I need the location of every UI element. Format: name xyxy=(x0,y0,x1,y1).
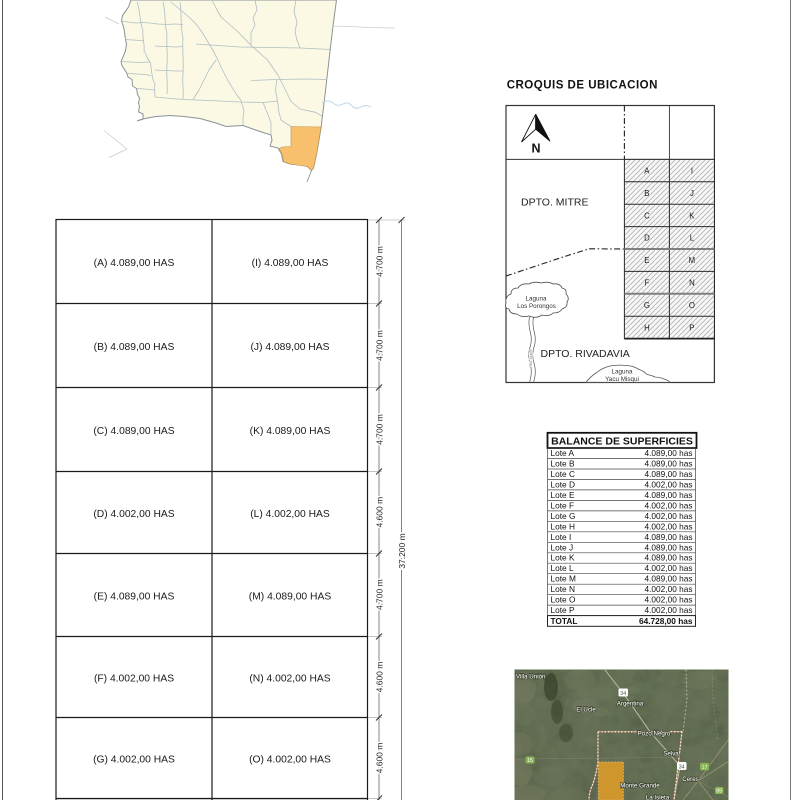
svg-text:(J) 4.089,00 HAS: (J) 4.089,00 HAS xyxy=(251,342,330,353)
svg-text:J: J xyxy=(690,189,694,198)
svg-text:Lote E: Lote E xyxy=(551,490,575,500)
svg-text:34: 34 xyxy=(620,691,626,697)
svg-text:Laguna: Laguna xyxy=(525,296,547,303)
svg-text:Lote H: Lote H xyxy=(551,521,575,531)
svg-text:(D) 4.002,00 HAS: (D) 4.002,00 HAS xyxy=(93,509,174,520)
svg-text:(B) 4.089,00 HAS: (B) 4.089,00 HAS xyxy=(94,342,175,353)
svg-text:F: F xyxy=(645,279,650,288)
svg-text:G: G xyxy=(644,301,650,310)
svg-text:4.600 m: 4.600 m xyxy=(375,662,385,693)
svg-text:4.002,00 has: 4.002,00 has xyxy=(645,563,693,573)
svg-text:DPTO. MITRE: DPTO. MITRE xyxy=(521,197,588,209)
svg-text:O: O xyxy=(689,301,695,310)
svg-text:P: P xyxy=(689,323,694,332)
svg-text:(G) 4.002,00 HAS: (G) 4.002,00 HAS xyxy=(93,755,175,766)
svg-text:(N) 4.002,00 HAS: (N) 4.002,00 HAS xyxy=(249,674,330,685)
svg-text:Villa Unión: Villa Unión xyxy=(516,674,546,681)
svg-text:Lote I: Lote I xyxy=(551,532,572,542)
svg-text:37.200 m: 37.200 m xyxy=(397,533,407,568)
svg-text:4.600 m: 4.600 m xyxy=(375,743,385,774)
svg-text:4.002,00 has: 4.002,00 has xyxy=(645,605,693,615)
svg-text:El Ucle: El Ucle xyxy=(576,707,596,714)
svg-text:4.089,00 has: 4.089,00 has xyxy=(645,532,693,542)
svg-text:4.700 m: 4.700 m xyxy=(375,330,385,361)
svg-text:La Isleta: La Isleta xyxy=(646,795,670,800)
svg-text:4.089,00 has: 4.089,00 has xyxy=(645,459,693,469)
svg-text:34: 34 xyxy=(679,764,685,770)
svg-text:L: L xyxy=(690,234,695,243)
svg-text:(A) 4.089,00 HAS: (A) 4.089,00 HAS xyxy=(94,258,175,269)
svg-text:Selva: Selva xyxy=(663,751,679,758)
svg-text:4.002,00 has: 4.002,00 has xyxy=(645,511,693,521)
svg-text:Lote B: Lote B xyxy=(551,459,575,469)
svg-text:(E) 4.089,00 HAS: (E) 4.089,00 HAS xyxy=(94,591,175,602)
svg-text:Yacu Misqui: Yacu Misqui xyxy=(605,376,639,383)
svg-text:Lote O: Lote O xyxy=(551,595,576,605)
svg-text:H: H xyxy=(644,323,650,332)
svg-text:Lote G: Lote G xyxy=(551,511,576,521)
svg-text:D: D xyxy=(644,234,650,243)
svg-text:Los Porongos: Los Porongos xyxy=(517,303,556,310)
svg-text:A: A xyxy=(644,167,650,176)
svg-text:4.089,00 has: 4.089,00 has xyxy=(645,469,693,479)
svg-text:4.700 m: 4.700 m xyxy=(375,246,385,277)
svg-text:DPTO. RIVADAVIA: DPTO. RIVADAVIA xyxy=(541,348,630,360)
svg-text:4.700 m: 4.700 m xyxy=(375,579,385,610)
svg-text:4.002,00 has: 4.002,00 has xyxy=(645,479,693,489)
svg-text:15: 15 xyxy=(527,758,533,764)
svg-text:M: M xyxy=(689,256,696,265)
svg-text:4.700 m: 4.700 m xyxy=(375,414,385,445)
svg-text:I: I xyxy=(691,167,693,176)
svg-text:N: N xyxy=(689,279,695,288)
svg-text:4.002,00 has: 4.002,00 has xyxy=(645,584,693,594)
svg-text:(M) 4.089,00 HAS: (M) 4.089,00 HAS xyxy=(249,591,332,602)
svg-text:(F) 4.002,00 HAS: (F) 4.002,00 HAS xyxy=(94,674,174,685)
svg-text:Lote N: Lote N xyxy=(551,584,575,594)
svg-text:4.089,00 has: 4.089,00 has xyxy=(645,448,693,458)
svg-text:Lote F: Lote F xyxy=(551,500,575,510)
svg-text:Lote P: Lote P xyxy=(551,605,575,615)
svg-text:Pozo Negro: Pozo Negro xyxy=(638,731,671,738)
svg-text:Ceres: Ceres xyxy=(682,776,699,783)
svg-text:Lote L: Lote L xyxy=(551,563,574,573)
svg-text:4.089,00 has: 4.089,00 has xyxy=(645,553,693,563)
svg-text:89: 89 xyxy=(716,789,722,795)
svg-text:C: C xyxy=(644,211,650,220)
svg-text:Lote M: Lote M xyxy=(551,574,576,584)
svg-text:(O) 4.002,00 HAS: (O) 4.002,00 HAS xyxy=(249,755,331,766)
svg-text:B: B xyxy=(644,189,649,198)
svg-text:Laguna: Laguna xyxy=(611,369,633,376)
svg-text:64.728,00 has: 64.728,00 has xyxy=(639,616,693,626)
svg-text:Monte Grande: Monte Grande xyxy=(620,783,660,790)
svg-text:K: K xyxy=(689,211,695,220)
svg-text:4.002,00 has: 4.002,00 has xyxy=(645,521,693,531)
svg-text:4.089,00 has: 4.089,00 has xyxy=(645,574,693,584)
svg-text:4.089,00 has: 4.089,00 has xyxy=(645,542,693,552)
svg-text:(K) 4.089,00 HAS: (K) 4.089,00 HAS xyxy=(250,426,331,437)
svg-text:Lote C: Lote C xyxy=(551,469,575,479)
svg-text:(I) 4.089,00 HAS: (I) 4.089,00 HAS xyxy=(252,258,329,269)
svg-text:4.002,00 has: 4.002,00 has xyxy=(645,500,693,510)
svg-text:17: 17 xyxy=(702,765,708,771)
svg-text:E: E xyxy=(644,256,649,265)
svg-text:Lote D: Lote D xyxy=(551,479,575,489)
svg-text:Lote K: Lote K xyxy=(551,553,575,563)
svg-text:Lote A: Lote A xyxy=(551,448,575,458)
svg-text:(L) 4.002,00 HAS: (L) 4.002,00 HAS xyxy=(250,509,330,520)
svg-text:N: N xyxy=(531,142,540,156)
svg-text:(C) 4.089,00 HAS: (C) 4.089,00 HAS xyxy=(93,426,174,437)
svg-text:BALANCE DE SUPERFICIES: BALANCE DE SUPERFICIES xyxy=(551,435,693,447)
svg-text:Rio Dulce: Rio Dulce xyxy=(528,349,533,367)
svg-text:Argentina: Argentina xyxy=(617,701,644,708)
svg-text:4.600 m: 4.600 m xyxy=(375,497,385,528)
svg-text:TOTAL: TOTAL xyxy=(551,616,578,626)
svg-text:4.002,00 has: 4.002,00 has xyxy=(645,595,693,605)
svg-text:CROQUIS DE UBICACION: CROQUIS DE UBICACION xyxy=(507,80,658,92)
svg-text:Lote J: Lote J xyxy=(551,542,574,552)
svg-text:4.089,00 has: 4.089,00 has xyxy=(645,490,693,500)
